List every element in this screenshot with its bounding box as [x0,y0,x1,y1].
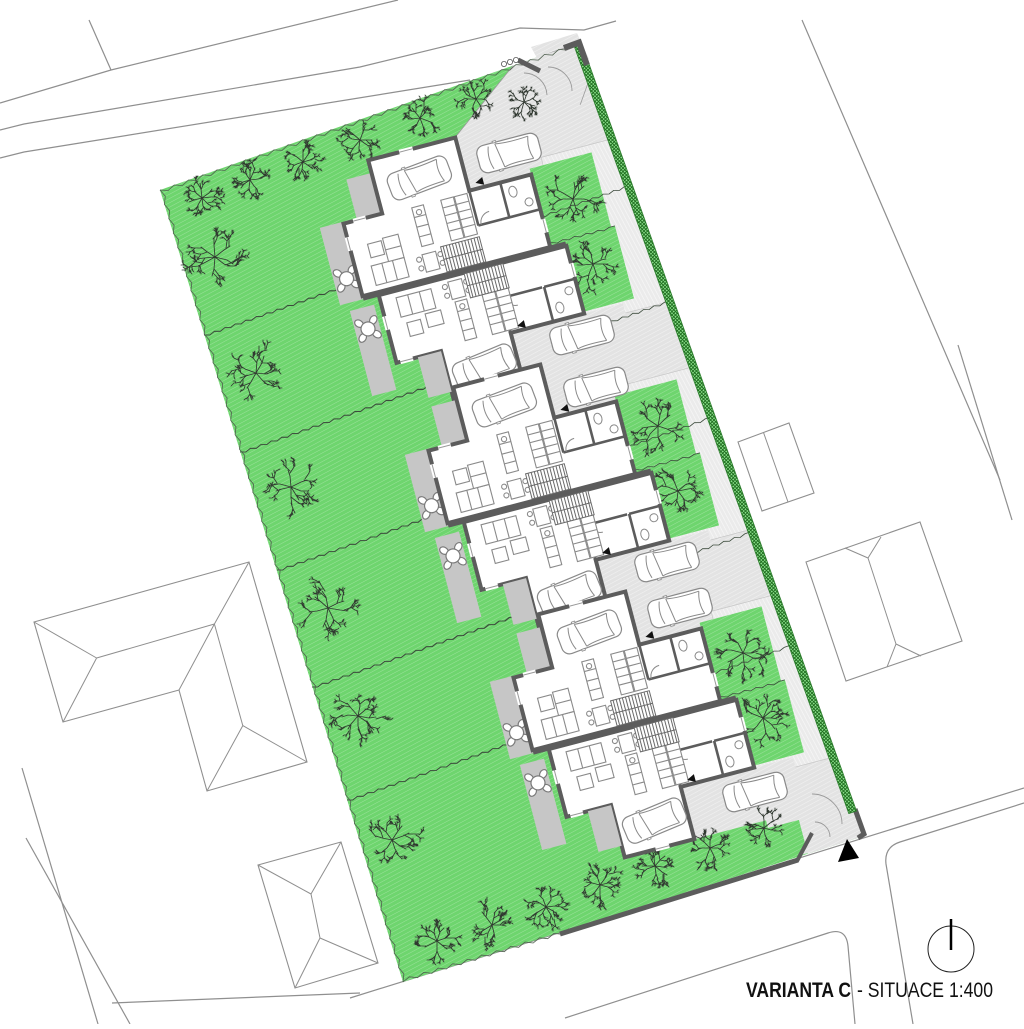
svg-text:VARIANTA C: VARIANTA C [746,977,851,1002]
svg-text:- SITUACE 1:400: - SITUACE 1:400 [857,977,993,1002]
